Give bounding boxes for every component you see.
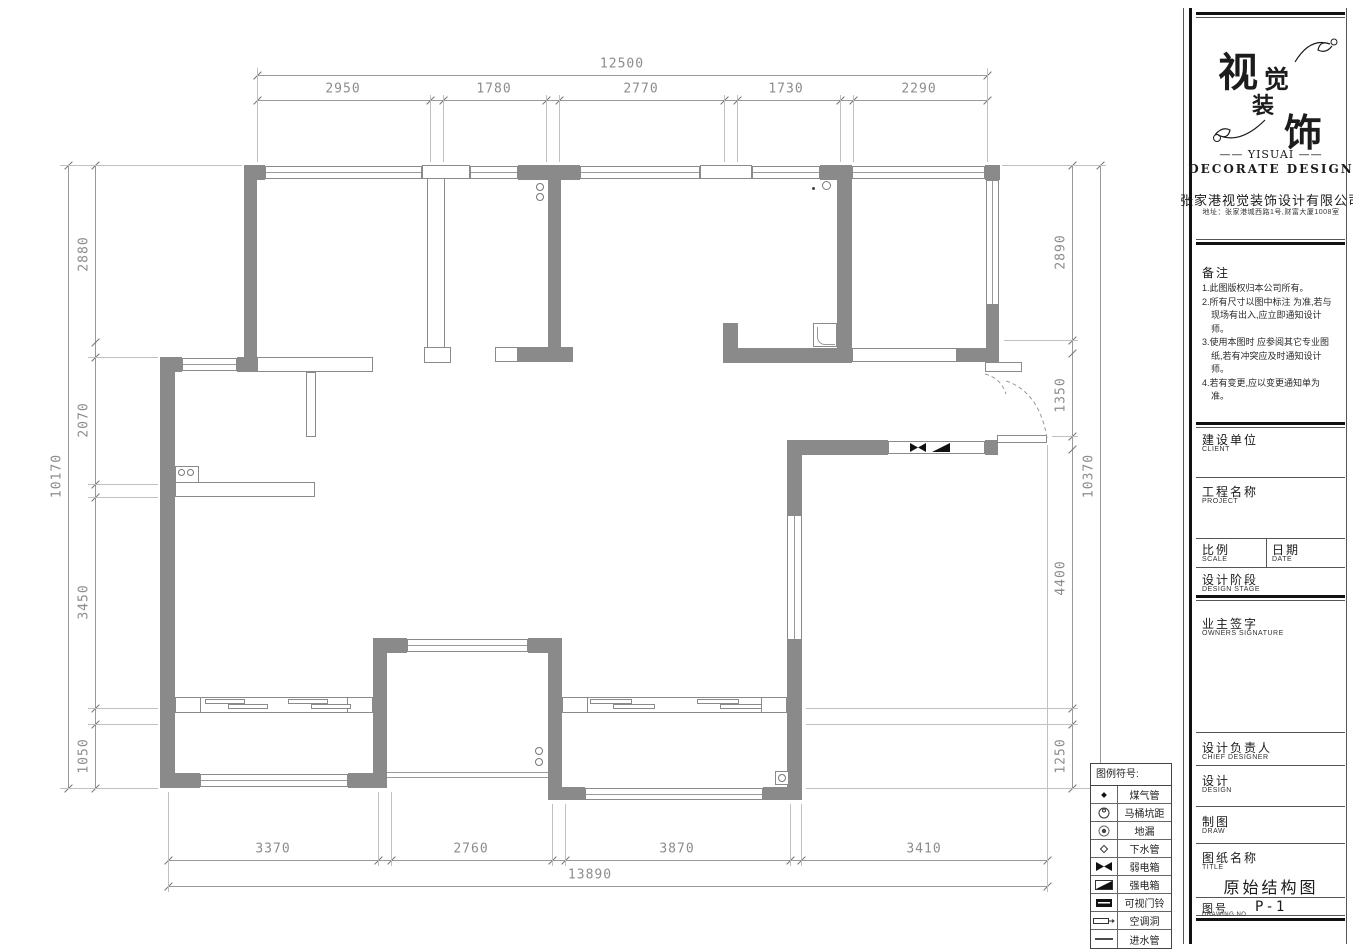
sliding-panel — [228, 704, 268, 709]
radiator-coil — [187, 469, 194, 476]
ext-line — [168, 792, 169, 892]
pipe-symbol — [535, 747, 543, 755]
legend-row: 进水管 — [1091, 930, 1171, 948]
window — [986, 180, 999, 305]
dim-label: 10170 — [50, 454, 65, 498]
divider — [1196, 17, 1345, 18]
wall — [985, 165, 1000, 180]
dim-label: 2290 — [901, 82, 936, 97]
ext-line — [1052, 436, 1078, 437]
sliding-door-pier — [761, 697, 787, 713]
sliding-door-pier — [562, 697, 588, 713]
dim-label: 2770 — [623, 82, 658, 97]
dim-label: 1780 — [476, 82, 511, 97]
dim-label: 2890 — [1054, 234, 1069, 269]
divider — [1196, 12, 1345, 15]
dim-label: 3870 — [659, 842, 694, 857]
pipe-symbol — [536, 193, 544, 201]
window — [852, 166, 985, 179]
frame-line — [1189, 8, 1192, 944]
field-owner-en: OWNERS SIGNATURE — [1202, 630, 1284, 637]
ext-line — [60, 165, 242, 166]
dim-label: 12500 — [600, 57, 644, 72]
drawing-sheet: 12500 2950 1780 2770 1730 2290 10170 288… — [0, 0, 1353, 952]
ext-line — [552, 804, 553, 866]
partition-wall — [700, 165, 752, 179]
partition-wall — [257, 357, 373, 372]
dim-label: 3450 — [77, 584, 92, 619]
divider — [1196, 242, 1345, 245]
ext-line — [88, 357, 158, 358]
ext-line — [88, 484, 158, 485]
window — [787, 515, 802, 640]
toilet-distance-icon — [1091, 804, 1118, 821]
note-item: 3.使用本图时 应参阅其它专业图纸,若有冲突应及时通知设计师。 — [1202, 336, 1334, 377]
wall — [787, 440, 888, 455]
weak-current-box-icon — [1091, 858, 1118, 875]
shelf — [175, 482, 315, 497]
partition-wall — [306, 372, 316, 437]
weak-current-box-icon — [910, 443, 926, 452]
wall — [548, 653, 562, 800]
ext-line — [378, 792, 379, 866]
divider — [1196, 732, 1345, 733]
ext-line — [853, 95, 854, 162]
sliding-panel — [720, 704, 762, 709]
dim-label: 1250 — [1054, 738, 1069, 773]
divider — [1196, 600, 1345, 601]
ext-line — [801, 804, 802, 866]
field-client-en: CLIENT — [1202, 446, 1230, 453]
wall — [244, 165, 265, 180]
field-draw-en: DRAW — [1202, 828, 1225, 835]
drain-pipe-icon — [1091, 840, 1118, 857]
legend-label: 下水管 — [1118, 840, 1171, 857]
dim-label: 1050 — [77, 738, 92, 773]
ext-line — [88, 497, 158, 498]
divider — [1196, 567, 1345, 568]
ac-hole-icon — [1091, 912, 1118, 929]
company-address: 地址：张家港城西路1号,财富大厦1008室 — [1203, 207, 1340, 217]
legend-label: 弱电箱 — [1118, 858, 1171, 875]
ext-line — [1002, 165, 1106, 166]
field-title-en: TITLE — [1202, 864, 1224, 871]
dim-line — [257, 100, 987, 101]
window — [407, 639, 528, 652]
legend-table: 图例符号: 煤气管 马桶坑距 地漏 下水管 弱电箱 强电箱 可视门铃 — [1090, 763, 1172, 949]
dim-line — [257, 75, 987, 76]
dim-line — [168, 860, 1047, 861]
wall — [373, 653, 387, 788]
wall — [348, 773, 387, 788]
legend-label: 马桶坑距 — [1118, 804, 1171, 821]
gas-pipe-symbol — [812, 187, 815, 190]
legend-label: 可视门铃 — [1118, 894, 1171, 911]
frame-line — [1183, 8, 1184, 944]
wall — [244, 180, 257, 362]
wall — [518, 165, 580, 180]
ext-line — [546, 95, 547, 162]
dim-label: 10370 — [1082, 454, 1097, 498]
doorbell-circle — [778, 774, 786, 782]
legend-row: 马桶坑距 — [1091, 804, 1171, 822]
wall — [160, 773, 200, 788]
divider — [1196, 477, 1345, 478]
dim-line — [95, 165, 96, 788]
divider — [1196, 843, 1345, 844]
ext-line — [840, 95, 841, 162]
floor-drain-icon — [1091, 822, 1118, 839]
dim-line — [1100, 165, 1101, 788]
dim-line — [1072, 165, 1073, 788]
partition-wall — [424, 347, 451, 363]
frame-line — [1346, 8, 1347, 944]
legend-row: 下水管 — [1091, 840, 1171, 858]
gas-meter-symbol — [822, 181, 831, 190]
wall — [548, 180, 561, 362]
wall — [237, 357, 257, 372]
sliding-panel — [311, 704, 351, 709]
divider — [1196, 765, 1345, 766]
field-stage-en: DESIGN STAGE — [1202, 586, 1260, 593]
water-inlet-icon — [1091, 930, 1118, 948]
ext-line — [559, 95, 560, 162]
ext-line — [806, 724, 1078, 725]
ext-line — [987, 68, 988, 162]
divider — [1196, 595, 1345, 598]
ext-line — [88, 724, 158, 725]
window — [470, 166, 518, 179]
ext-line — [443, 95, 444, 162]
divider — [1196, 806, 1345, 807]
ext-line — [724, 95, 725, 162]
legend-label: 煤气管 — [1118, 786, 1171, 803]
note-item: 2.所有尺寸以图中标注 为准,若与现场有出入,应立即通知设计师。 — [1202, 296, 1334, 337]
legend-label: 地漏 — [1118, 822, 1171, 839]
dim-label: 4400 — [1054, 560, 1069, 595]
partition-wall — [852, 348, 957, 362]
dim-label: 2950 — [325, 82, 360, 97]
dim-label: 2070 — [77, 402, 92, 437]
legend-title: 图例符号: — [1091, 764, 1171, 786]
strong-current-box-icon — [1091, 876, 1118, 893]
window — [200, 774, 348, 787]
ext-line — [391, 792, 392, 866]
dim-label: 1350 — [1054, 377, 1069, 412]
legend-label: 强电箱 — [1118, 876, 1171, 893]
ext-line — [737, 95, 738, 162]
partition-wall — [422, 165, 470, 179]
ext-line — [565, 804, 566, 866]
ext-line — [60, 788, 158, 789]
legend-row: 强电箱 — [1091, 876, 1171, 894]
legend-row: 弱电箱 — [1091, 858, 1171, 876]
wall — [723, 323, 738, 348]
dim-label: 3410 — [906, 842, 941, 857]
wall — [763, 787, 802, 800]
divider — [1196, 538, 1345, 539]
divider — [1196, 918, 1345, 921]
legend-row: 空调洞 — [1091, 912, 1171, 930]
strong-current-box-icon — [932, 443, 950, 452]
note-item: 1.此图版权归本公司所有。 — [1202, 282, 1334, 296]
logo-en-subtitle: DECORATE DESIGN — [1188, 162, 1353, 176]
ext-line — [1004, 340, 1078, 341]
dim-label: 2880 — [77, 236, 92, 271]
dim-label: 2760 — [453, 842, 488, 857]
legend-row: 可视门铃 — [1091, 894, 1171, 912]
wall — [373, 638, 407, 653]
ext-line — [257, 68, 258, 162]
dim-label: 13890 — [568, 868, 612, 883]
wall — [528, 638, 562, 653]
divider — [1196, 422, 1345, 425]
partition-wall — [495, 347, 518, 362]
wall — [160, 372, 175, 788]
wall — [787, 640, 802, 788]
ext-line — [88, 708, 158, 709]
wall — [837, 180, 852, 363]
ext-line — [806, 788, 1106, 789]
legend-row: 地漏 — [1091, 822, 1171, 840]
pipe-symbol — [535, 758, 543, 766]
field-project-en: PROJECT — [1202, 498, 1238, 505]
shower-tray-inner — [817, 327, 835, 345]
dim-label: 3370 — [255, 842, 290, 857]
legend-row: 煤气管 — [1091, 786, 1171, 804]
divider — [1196, 427, 1345, 428]
logo-en-name: —— YISUAI —— — [1219, 148, 1322, 161]
notes-list: 1.此图版权归本公司所有。 2.所有尺寸以图中标注 为准,若与现场有出入,应立即… — [1202, 282, 1334, 404]
drawing-title: 原始结构图 — [1223, 874, 1318, 898]
dim-line — [68, 165, 69, 788]
divider — [1196, 239, 1345, 240]
dim-label: 1730 — [768, 82, 803, 97]
legend-label: 空调洞 — [1118, 912, 1171, 929]
ext-line — [790, 804, 791, 866]
drawing-number: P-1 — [1255, 899, 1286, 915]
video-doorbell-icon — [1091, 894, 1118, 911]
radiator-coil — [178, 469, 185, 476]
ext-line — [1047, 445, 1048, 892]
field-chief-en: CHIEF DESIGNER — [1202, 754, 1269, 761]
ext-line — [806, 708, 1078, 709]
logo-flourish — [1290, 32, 1340, 72]
window — [387, 772, 548, 778]
partition-wall — [427, 178, 445, 348]
pipe-symbol — [536, 183, 544, 191]
field-scale-en: SCALE — [1202, 556, 1227, 563]
entry-door-swing — [983, 358, 1053, 450]
field-date-en: DATE — [1272, 556, 1292, 563]
sliding-panel — [613, 704, 655, 709]
wall — [787, 455, 802, 515]
wall — [820, 165, 852, 180]
window — [585, 788, 763, 800]
notes-title: 备注 — [1202, 264, 1230, 281]
window — [265, 166, 422, 179]
divider — [1266, 538, 1267, 567]
wall — [723, 348, 852, 363]
dim-line — [168, 886, 1047, 887]
ext-line — [430, 95, 431, 162]
legend-label: 进水管 — [1118, 930, 1171, 948]
field-design-en: DESIGN — [1202, 787, 1232, 794]
window — [580, 166, 700, 179]
note-item: 4.若有变更,应以变更通知单为准。 — [1202, 377, 1334, 404]
window — [182, 358, 237, 371]
sliding-door-pier — [175, 697, 201, 713]
field-no-en: DRAWING NO — [1202, 912, 1246, 918]
window — [752, 166, 820, 179]
gas-pipe-icon — [1091, 786, 1118, 803]
wall — [518, 347, 573, 362]
wall — [160, 357, 182, 372]
logo-flourish — [1210, 110, 1270, 150]
